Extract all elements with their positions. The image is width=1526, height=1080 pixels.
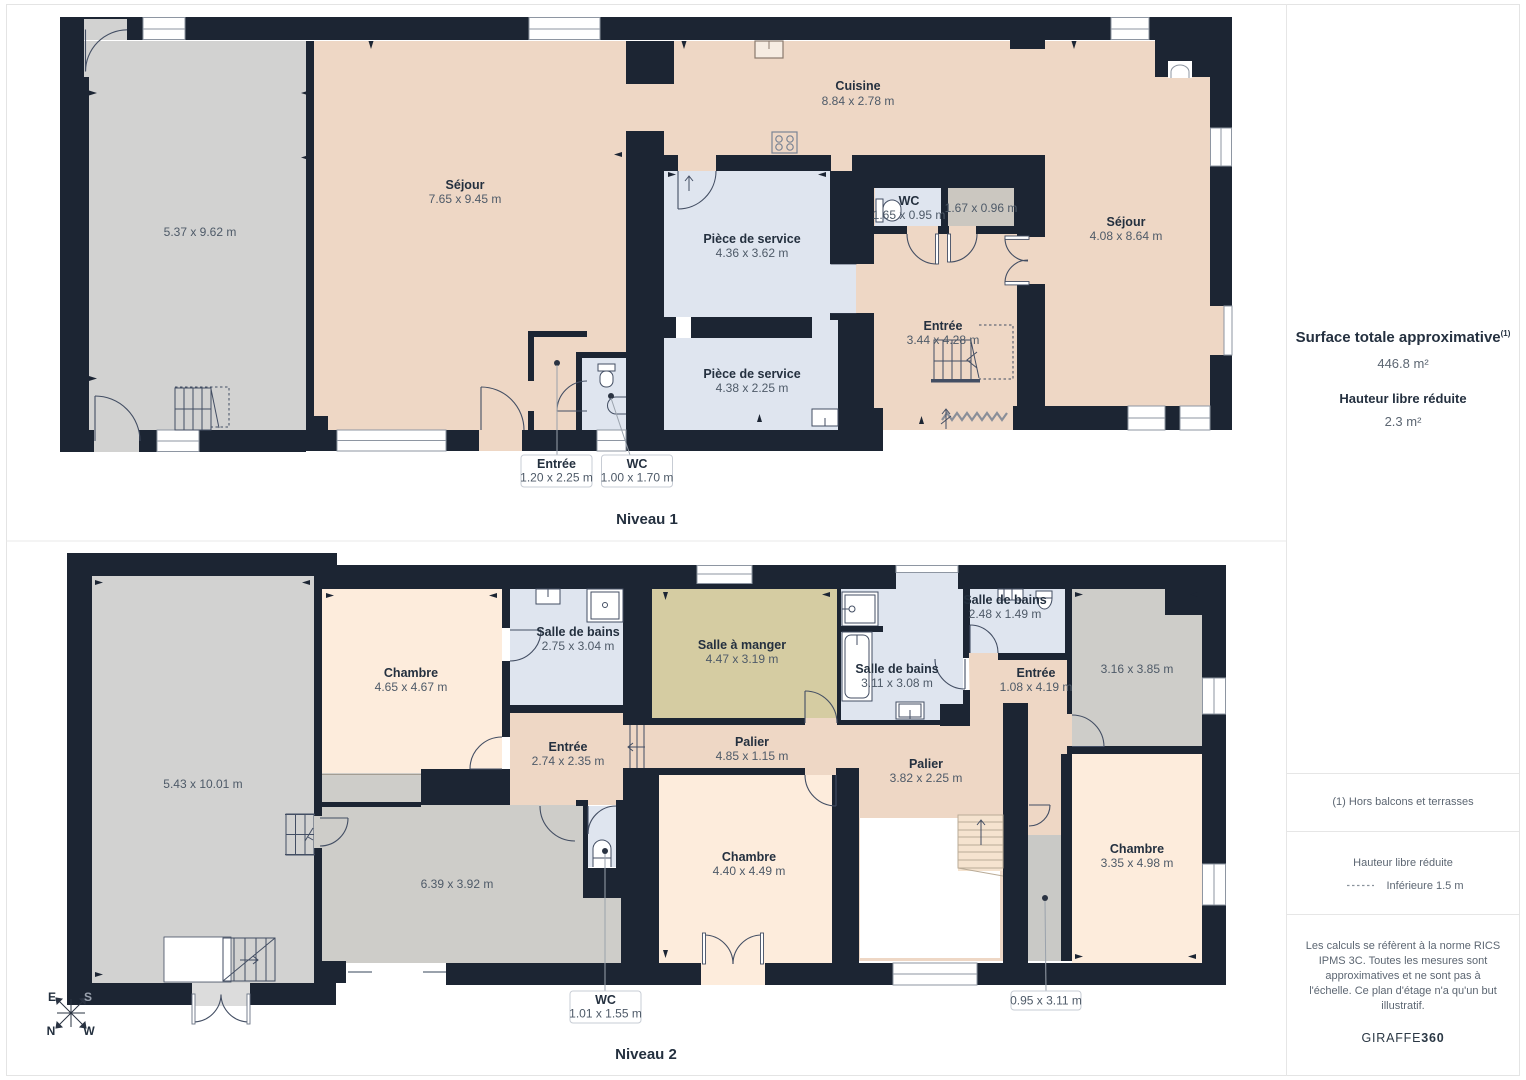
svg-text:S: S [84, 990, 92, 1004]
svg-text:4.47 x 3.19 m: 4.47 x 3.19 m [706, 652, 779, 666]
svg-text:illustratif.: illustratif. [1381, 1000, 1424, 1012]
svg-text:4.08 x 8.64 m: 4.08 x 8.64 m [1090, 229, 1163, 243]
svg-text:5.37 x 9.62 m: 5.37 x 9.62 m [164, 225, 237, 239]
svg-text:3.44 x 4.28 m: 3.44 x 4.28 m [907, 333, 980, 347]
svg-text:Séjour: Séjour [1107, 215, 1146, 229]
svg-text:WC: WC [899, 194, 920, 208]
svg-text:7.65 x 9.45 m: 7.65 x 9.45 m [429, 192, 502, 206]
svg-text:Salle de bains: Salle de bains [963, 593, 1046, 607]
svg-text:4.40 x 4.49 m: 4.40 x 4.49 m [713, 864, 786, 878]
svg-text:Palier: Palier [909, 757, 943, 771]
svg-text:Entrée: Entrée [549, 740, 588, 754]
svg-text:(1) Hors balcons et terrasses: (1) Hors balcons et terrasses [1332, 796, 1474, 808]
svg-text:W: W [83, 1024, 95, 1038]
svg-text:1.20 x 2.25 m: 1.20 x 2.25 m [520, 471, 593, 485]
svg-text:4.36 x 3.62 m: 4.36 x 3.62 m [716, 246, 789, 260]
svg-text:0.95 x 3.11 m: 0.95 x 3.11 m [1010, 994, 1082, 1008]
svg-text:Palier: Palier [735, 735, 769, 749]
svg-text:4.85 x 1.15 m: 4.85 x 1.15 m [716, 749, 789, 763]
svg-text:Cuisine: Cuisine [835, 79, 880, 93]
svg-text:N: N [47, 1024, 56, 1038]
svg-text:1.67 x 0.96 m: 1.67 x 0.96 m [945, 201, 1018, 215]
svg-text:3.11 x 3.08 m: 3.11 x 3.08 m [861, 676, 933, 690]
svg-text:Inférieure 1.5 m: Inférieure 1.5 m [1386, 880, 1463, 892]
svg-text:WC: WC [595, 993, 616, 1007]
svg-text:approximatives et ne sont pas: approximatives et ne sont pas à [1325, 970, 1481, 982]
svg-text:Chambre: Chambre [384, 666, 438, 680]
svg-text:3.82 x 2.25 m: 3.82 x 2.25 m [890, 771, 963, 785]
svg-text:446.8 m²: 446.8 m² [1377, 356, 1429, 371]
svg-text:1.65 x 0.95 m: 1.65 x 0.95 m [873, 208, 946, 222]
svg-text:Salle de bains: Salle de bains [536, 625, 619, 639]
svg-text:5.43 x 10.01 m: 5.43 x 10.01 m [163, 777, 242, 791]
svg-text:4.38 x 2.25 m: 4.38 x 2.25 m [716, 381, 789, 395]
svg-text:1.01 x 1.55 m: 1.01 x 1.55 m [569, 1007, 642, 1021]
svg-text:IPMS 3C. Toutes les mesures so: IPMS 3C. Toutes les mesures sont [1319, 955, 1488, 967]
svg-text:Pièce de service: Pièce de service [703, 232, 800, 246]
svg-text:Hauteur libre réduite: Hauteur libre réduite [1353, 857, 1453, 869]
svg-text:l'échelle. Ce plan d'étage n'a: l'échelle. Ce plan d'étage n'a qu'un but [1309, 985, 1497, 997]
svg-text:8.84 x 2.78 m: 8.84 x 2.78 m [822, 94, 895, 108]
svg-text:3.16 x 3.85 m: 3.16 x 3.85 m [1101, 662, 1174, 676]
svg-text:2.74 x 2.35 m: 2.74 x 2.35 m [532, 754, 605, 768]
svg-text:Chambre: Chambre [722, 850, 776, 864]
svg-text:3.35 x 4.98 m: 3.35 x 4.98 m [1101, 856, 1174, 870]
svg-text:2.75 x 3.04 m: 2.75 x 3.04 m [542, 639, 615, 653]
svg-text:Les calculs se réfèrent à la n: Les calculs se réfèrent à la norme RICS [1306, 940, 1500, 952]
svg-text:Niveau 2: Niveau 2 [615, 1046, 677, 1063]
svg-text:WC: WC [627, 457, 648, 471]
svg-text:Entrée: Entrée [537, 457, 576, 471]
svg-text:4.65 x 4.67 m: 4.65 x 4.67 m [375, 680, 448, 694]
svg-text:Salle de bains: Salle de bains [855, 662, 938, 676]
svg-text:Séjour: Séjour [446, 178, 485, 192]
svg-text:1.08 x 4.19 m: 1.08 x 4.19 m [1000, 680, 1073, 694]
svg-text:Hauteur libre réduite: Hauteur libre réduite [1339, 391, 1466, 406]
svg-text:2.3 m²: 2.3 m² [1385, 414, 1423, 429]
svg-text:Surface totale approximative(1: Surface totale approximative(1) [1296, 329, 1511, 346]
svg-text:Entrée: Entrée [924, 319, 963, 333]
svg-text:Salle à manger: Salle à manger [698, 638, 786, 652]
svg-text:2.48 x 1.49 m: 2.48 x 1.49 m [969, 607, 1042, 621]
svg-text:Niveau 1: Niveau 1 [616, 511, 678, 528]
svg-text:Entrée: Entrée [1017, 666, 1056, 680]
svg-text:1.00 x 1.70 m: 1.00 x 1.70 m [601, 471, 674, 485]
svg-text:E: E [48, 990, 56, 1004]
svg-text:Chambre: Chambre [1110, 842, 1164, 856]
svg-text:GIRAFFE360: GIRAFFE360 [1361, 1031, 1444, 1045]
svg-text:Pièce de service: Pièce de service [703, 367, 800, 381]
svg-text:6.39 x 3.92 m: 6.39 x 3.92 m [421, 877, 494, 891]
